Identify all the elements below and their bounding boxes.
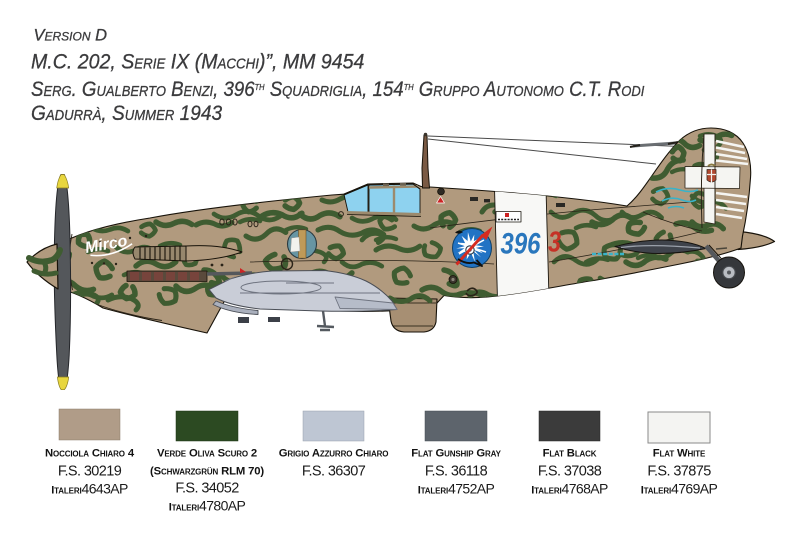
- svg-text:M.C. 202, Serie IX (Macchi)”,: M.C. 202, Serie IX (Macchi)”, MM 9454: [31, 50, 364, 74]
- svg-text:F.S. 37875: F.S. 37875: [647, 464, 711, 480]
- svg-text:Verde Oliva Scuro 2: Verde Oliva Scuro 2: [157, 448, 257, 460]
- svg-text:Nocciola Chiaro 4: Nocciola Chiaro 4: [45, 448, 135, 460]
- svg-text:(Schwarzgrün RLM 70): (Schwarzgrün RLM 70): [150, 466, 264, 478]
- svg-text:396: 396: [501, 228, 541, 261]
- svg-text:Flat Black: Flat Black: [543, 448, 597, 460]
- svg-text:Serg. Gualberto Benzi, 396th S: Serg. Gualberto Benzi, 396th Squadriglia…: [31, 78, 644, 101]
- svg-text:3: 3: [548, 227, 561, 259]
- svg-text:Flat White: Flat White: [653, 448, 706, 460]
- svg-text:F.S. 36118: F.S. 36118: [425, 464, 488, 480]
- svg-text:F.S. 34052: F.S. 34052: [175, 481, 239, 497]
- svg-text:Gadurrà, Summer 1943: Gadurrà, Summer 1943: [31, 102, 223, 125]
- svg-text:Version D: Version D: [34, 27, 108, 45]
- svg-text:Flat Gunship Gray: Flat Gunship Gray: [411, 448, 501, 460]
- svg-text:F.S. 30219: F.S. 30219: [58, 464, 122, 480]
- svg-text:F.S. 37038: F.S. 37038: [538, 464, 602, 480]
- svg-text:Grigio Azzurro Chiaro: Grigio Azzurro Chiaro: [279, 448, 389, 460]
- svg-text:F.S. 36307: F.S. 36307: [302, 464, 366, 480]
